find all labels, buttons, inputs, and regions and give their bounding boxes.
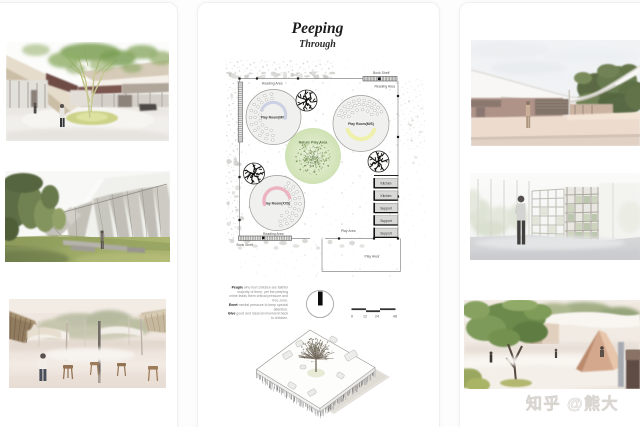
svg-text:Reading Area: Reading Area [262,82,283,86]
svg-text:Reading Area: Reading Area [375,84,396,88]
svg-text:Kitchen: Kitchen [381,194,392,198]
svg-text:Play Room(M/L): Play Room(M/L) [261,116,287,120]
svg-text:Support: Support [380,219,392,223]
svg-text:Kitchen: Kitchen [381,182,392,186]
svg-text:Exert mental pressure to keep: Exert mental pressure to keep special [229,303,288,307]
svg-text:to children.: to children. [271,316,288,320]
svg-text:Support: Support [380,207,392,211]
svg-text:12: 12 [363,315,367,319]
svg-text:Nature Play Area: Nature Play Area [299,141,329,145]
svg-text:crime leads them critical pres: crime leads them critical pressure and [229,294,288,298]
svg-text:0: 0 [351,315,353,319]
svg-text:Play Area: Play Area [341,229,356,233]
svg-text:Reading Area: Reading Area [263,232,284,236]
svg-text:People who hurt children are f: People who hurt children are faithful [232,286,289,290]
svg-text:24: 24 [375,315,379,319]
svg-text:Play Area: Play Area [365,254,380,258]
svg-text:Support: Support [380,231,392,235]
svg-text:Play Room(XXS): Play Room(XXS) [264,202,291,206]
svg-text:Book Shelf: Book Shelf [237,243,253,247]
svg-text:Play Room(M/S): Play Room(M/S) [348,122,374,126]
svg-text:Book Shelf: Book Shelf [373,71,389,75]
svg-text:48: 48 [393,315,397,319]
svg-text:Give good and ideal environmen: Give good and ideal environment back [228,312,288,316]
